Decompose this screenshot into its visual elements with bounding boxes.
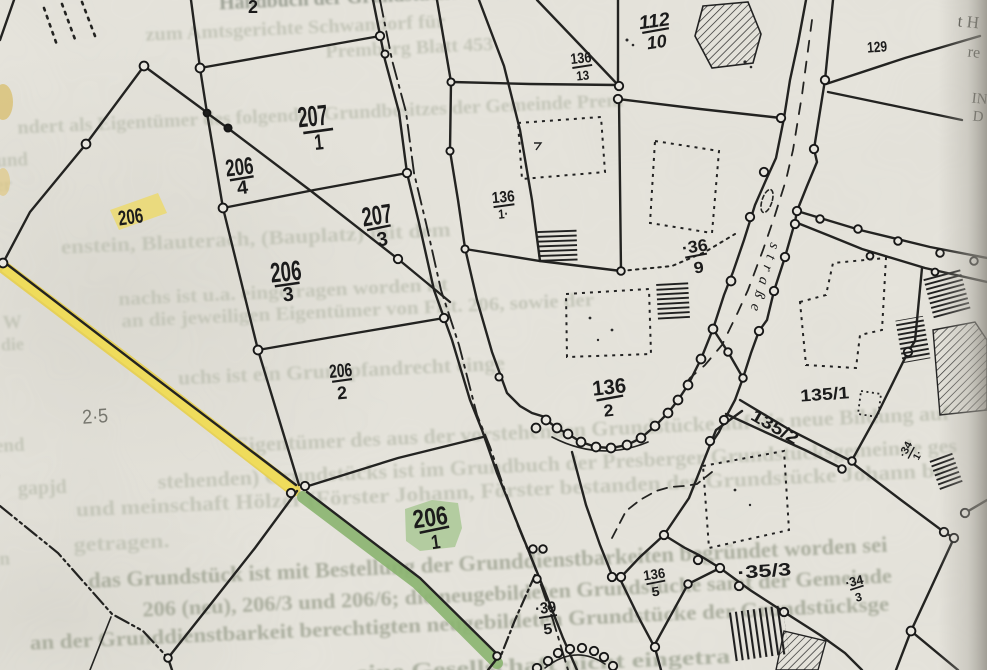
svg-text:3: 3 bbox=[282, 283, 295, 306]
svg-text:1·: 1· bbox=[498, 206, 509, 222]
svg-text:13: 13 bbox=[575, 67, 589, 83]
svg-text:10: 10 bbox=[645, 31, 668, 54]
svg-text:5: 5 bbox=[543, 621, 554, 639]
svg-text:·35/3: ·35/3 bbox=[737, 559, 792, 583]
svg-text:2: 2 bbox=[336, 383, 348, 404]
svg-text:gapjd: gapjd bbox=[17, 476, 67, 500]
svg-text:135/1: 135/1 bbox=[800, 383, 850, 405]
svg-text:chend: chend bbox=[0, 435, 25, 458]
svg-text:en: en bbox=[0, 549, 11, 571]
svg-text:129: 129 bbox=[867, 38, 888, 56]
svg-text:206: 206 bbox=[411, 500, 450, 535]
svg-text:2: 2 bbox=[248, 0, 258, 17]
svg-text:206: 206 bbox=[117, 204, 145, 230]
svg-text:2: 2 bbox=[603, 401, 615, 421]
svg-text:ng die: ng die bbox=[0, 334, 24, 356]
svg-text:hs W: hs W bbox=[0, 312, 22, 335]
svg-text:getragen.: getragen. bbox=[73, 528, 170, 556]
svg-text:2·5: 2·5 bbox=[81, 405, 108, 429]
